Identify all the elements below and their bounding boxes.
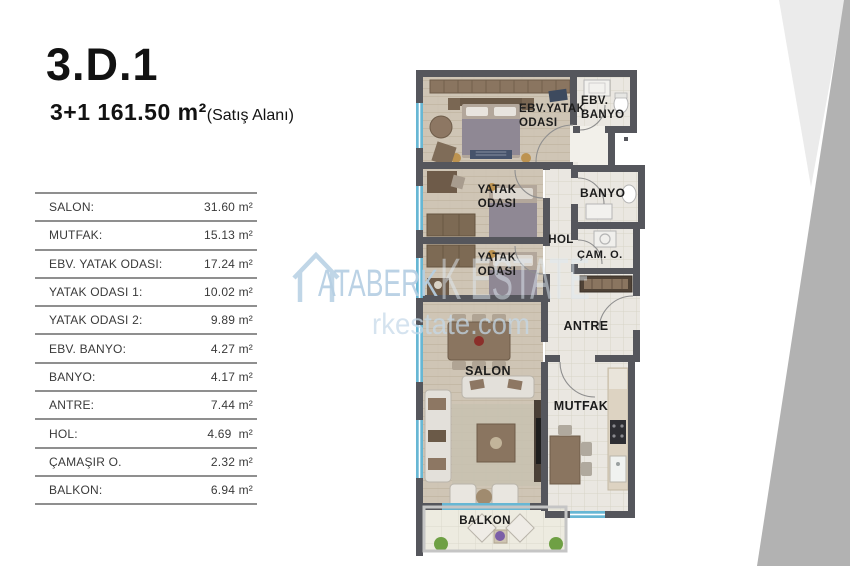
room-name: EBV. BANYO: xyxy=(49,342,126,356)
table-decor xyxy=(490,437,502,449)
burner xyxy=(612,434,615,437)
toilet-tank xyxy=(615,93,627,98)
label-kitchen: MUTFAK xyxy=(554,399,608,413)
lamp-gold xyxy=(521,153,531,163)
table-row: SALON:31.60 m² xyxy=(35,192,257,220)
kitchen-chair xyxy=(581,442,592,456)
room-name: ÇAMAŞIR O. xyxy=(49,455,122,469)
armchair xyxy=(430,116,452,138)
corner-decoration xyxy=(757,0,850,566)
sink xyxy=(610,456,626,482)
table-row: EBV. BANYO:4.27 m² xyxy=(35,333,257,361)
page-subtitle: 3+1 161.50 m²(Satış Alanı) xyxy=(50,99,294,126)
shaft-mark xyxy=(624,137,628,141)
label-bedroom-1-2: ODASI xyxy=(478,198,516,210)
table-row: ÇAMAŞIR O.2.32 m² xyxy=(35,447,257,475)
cushion xyxy=(428,458,446,470)
label-master-bath: EBV. xyxy=(581,95,608,107)
tv xyxy=(536,418,541,464)
room-area-table: SALON:31.60 m² MUTFAK:15.13 m² EBV. YATA… xyxy=(35,192,257,505)
room-name: MUTFAK: xyxy=(49,228,102,242)
label-entry: ANTRE xyxy=(563,319,608,333)
stove xyxy=(610,420,626,444)
room-area: 10.02 m² xyxy=(204,285,253,299)
table-row: BANYO:4.17 m² xyxy=(35,362,257,390)
fridge xyxy=(609,369,627,389)
bed-blanket xyxy=(462,119,520,155)
label-hall: HOL xyxy=(548,234,573,246)
room-name: BALKON: xyxy=(49,483,102,497)
burner xyxy=(620,424,623,427)
room-name: YATAK ODASI 2: xyxy=(49,313,143,327)
nightstand-left xyxy=(448,98,460,110)
room-name: EBV. YATAK ODASI: xyxy=(49,257,162,271)
room-area: 4.69 m² xyxy=(207,427,253,441)
pillow xyxy=(494,107,516,116)
potted-plant-purple xyxy=(495,531,505,541)
faucet xyxy=(616,462,620,466)
potted-plant-green xyxy=(434,537,448,551)
label-balcony: BALKON xyxy=(459,515,511,527)
room-area: 17.24 m² xyxy=(204,257,253,271)
label-bathroom: BANYO xyxy=(580,186,625,200)
room-area: 7.44 m² xyxy=(211,398,253,412)
room-name: YATAK ODASI 1: xyxy=(49,285,143,299)
sofa xyxy=(427,214,475,236)
kitchen-chair xyxy=(558,425,572,435)
table-row: HOL:4.69 m² xyxy=(35,418,257,446)
window xyxy=(416,103,423,148)
shower xyxy=(584,80,610,96)
label-living-room: SALON xyxy=(465,364,511,378)
label-bedroom-1: YATAK xyxy=(478,184,517,196)
pillow xyxy=(466,107,488,116)
room-area: 2.32 m² xyxy=(211,455,253,469)
room-area: 15.13 m² xyxy=(204,228,253,242)
burner xyxy=(612,424,615,427)
page-title: 3.D.1 xyxy=(46,42,159,87)
room-name: BANYO: xyxy=(49,370,96,384)
potted-plant-green xyxy=(549,537,563,551)
shower xyxy=(586,204,612,219)
kitchen-window xyxy=(570,511,605,518)
kitchen-chair xyxy=(581,462,592,476)
watermark-domain: rkestate.com xyxy=(372,308,530,341)
area-note: (Satış Alanı) xyxy=(207,107,294,124)
table-row: YATAK ODASI 1:10.02 m² xyxy=(35,277,257,305)
room-name: SALON: xyxy=(49,200,94,214)
dining-chair xyxy=(452,361,466,370)
window xyxy=(416,186,423,230)
label-master-bath-2: BANYO xyxy=(581,109,625,121)
room-area: 4.17 m² xyxy=(211,370,253,384)
table-row: YATAK ODASI 2:9.89 m² xyxy=(35,305,257,333)
area-value: 3+1 161.50 m² xyxy=(50,99,207,125)
watermark-brand: ATABERK xyxy=(318,263,438,305)
table-row: EBV. YATAK ODASI:17.24 m² xyxy=(35,249,257,277)
room-area: 9.89 m² xyxy=(211,313,253,327)
room-area: 4.27 m² xyxy=(211,342,253,356)
room-area: 31.60 m² xyxy=(204,200,253,214)
room-name: HOL: xyxy=(49,427,78,441)
label-master-bedroom: EBV.YATAK xyxy=(519,103,586,115)
cushion xyxy=(428,430,446,442)
room-name: ANTRE: xyxy=(49,398,94,412)
table-row: BALKON:6.94 m² xyxy=(35,475,257,505)
washing-machine xyxy=(594,231,616,247)
burner xyxy=(620,434,623,437)
bed-bench xyxy=(470,150,512,159)
table-row: ANTRE:7.44 m² xyxy=(35,390,257,418)
window xyxy=(416,420,423,478)
cushion xyxy=(428,398,446,410)
kitchen-table xyxy=(550,436,580,484)
label-master-bedroom-2: ODASI xyxy=(519,117,557,129)
table-row: MUTFAK:15.13 m² xyxy=(35,220,257,248)
watermark-brand-large: K ESTATE xyxy=(440,247,590,312)
room-area: 6.94 m² xyxy=(211,483,253,497)
pouf xyxy=(476,489,492,505)
shoe-cabinet-front xyxy=(584,279,628,289)
